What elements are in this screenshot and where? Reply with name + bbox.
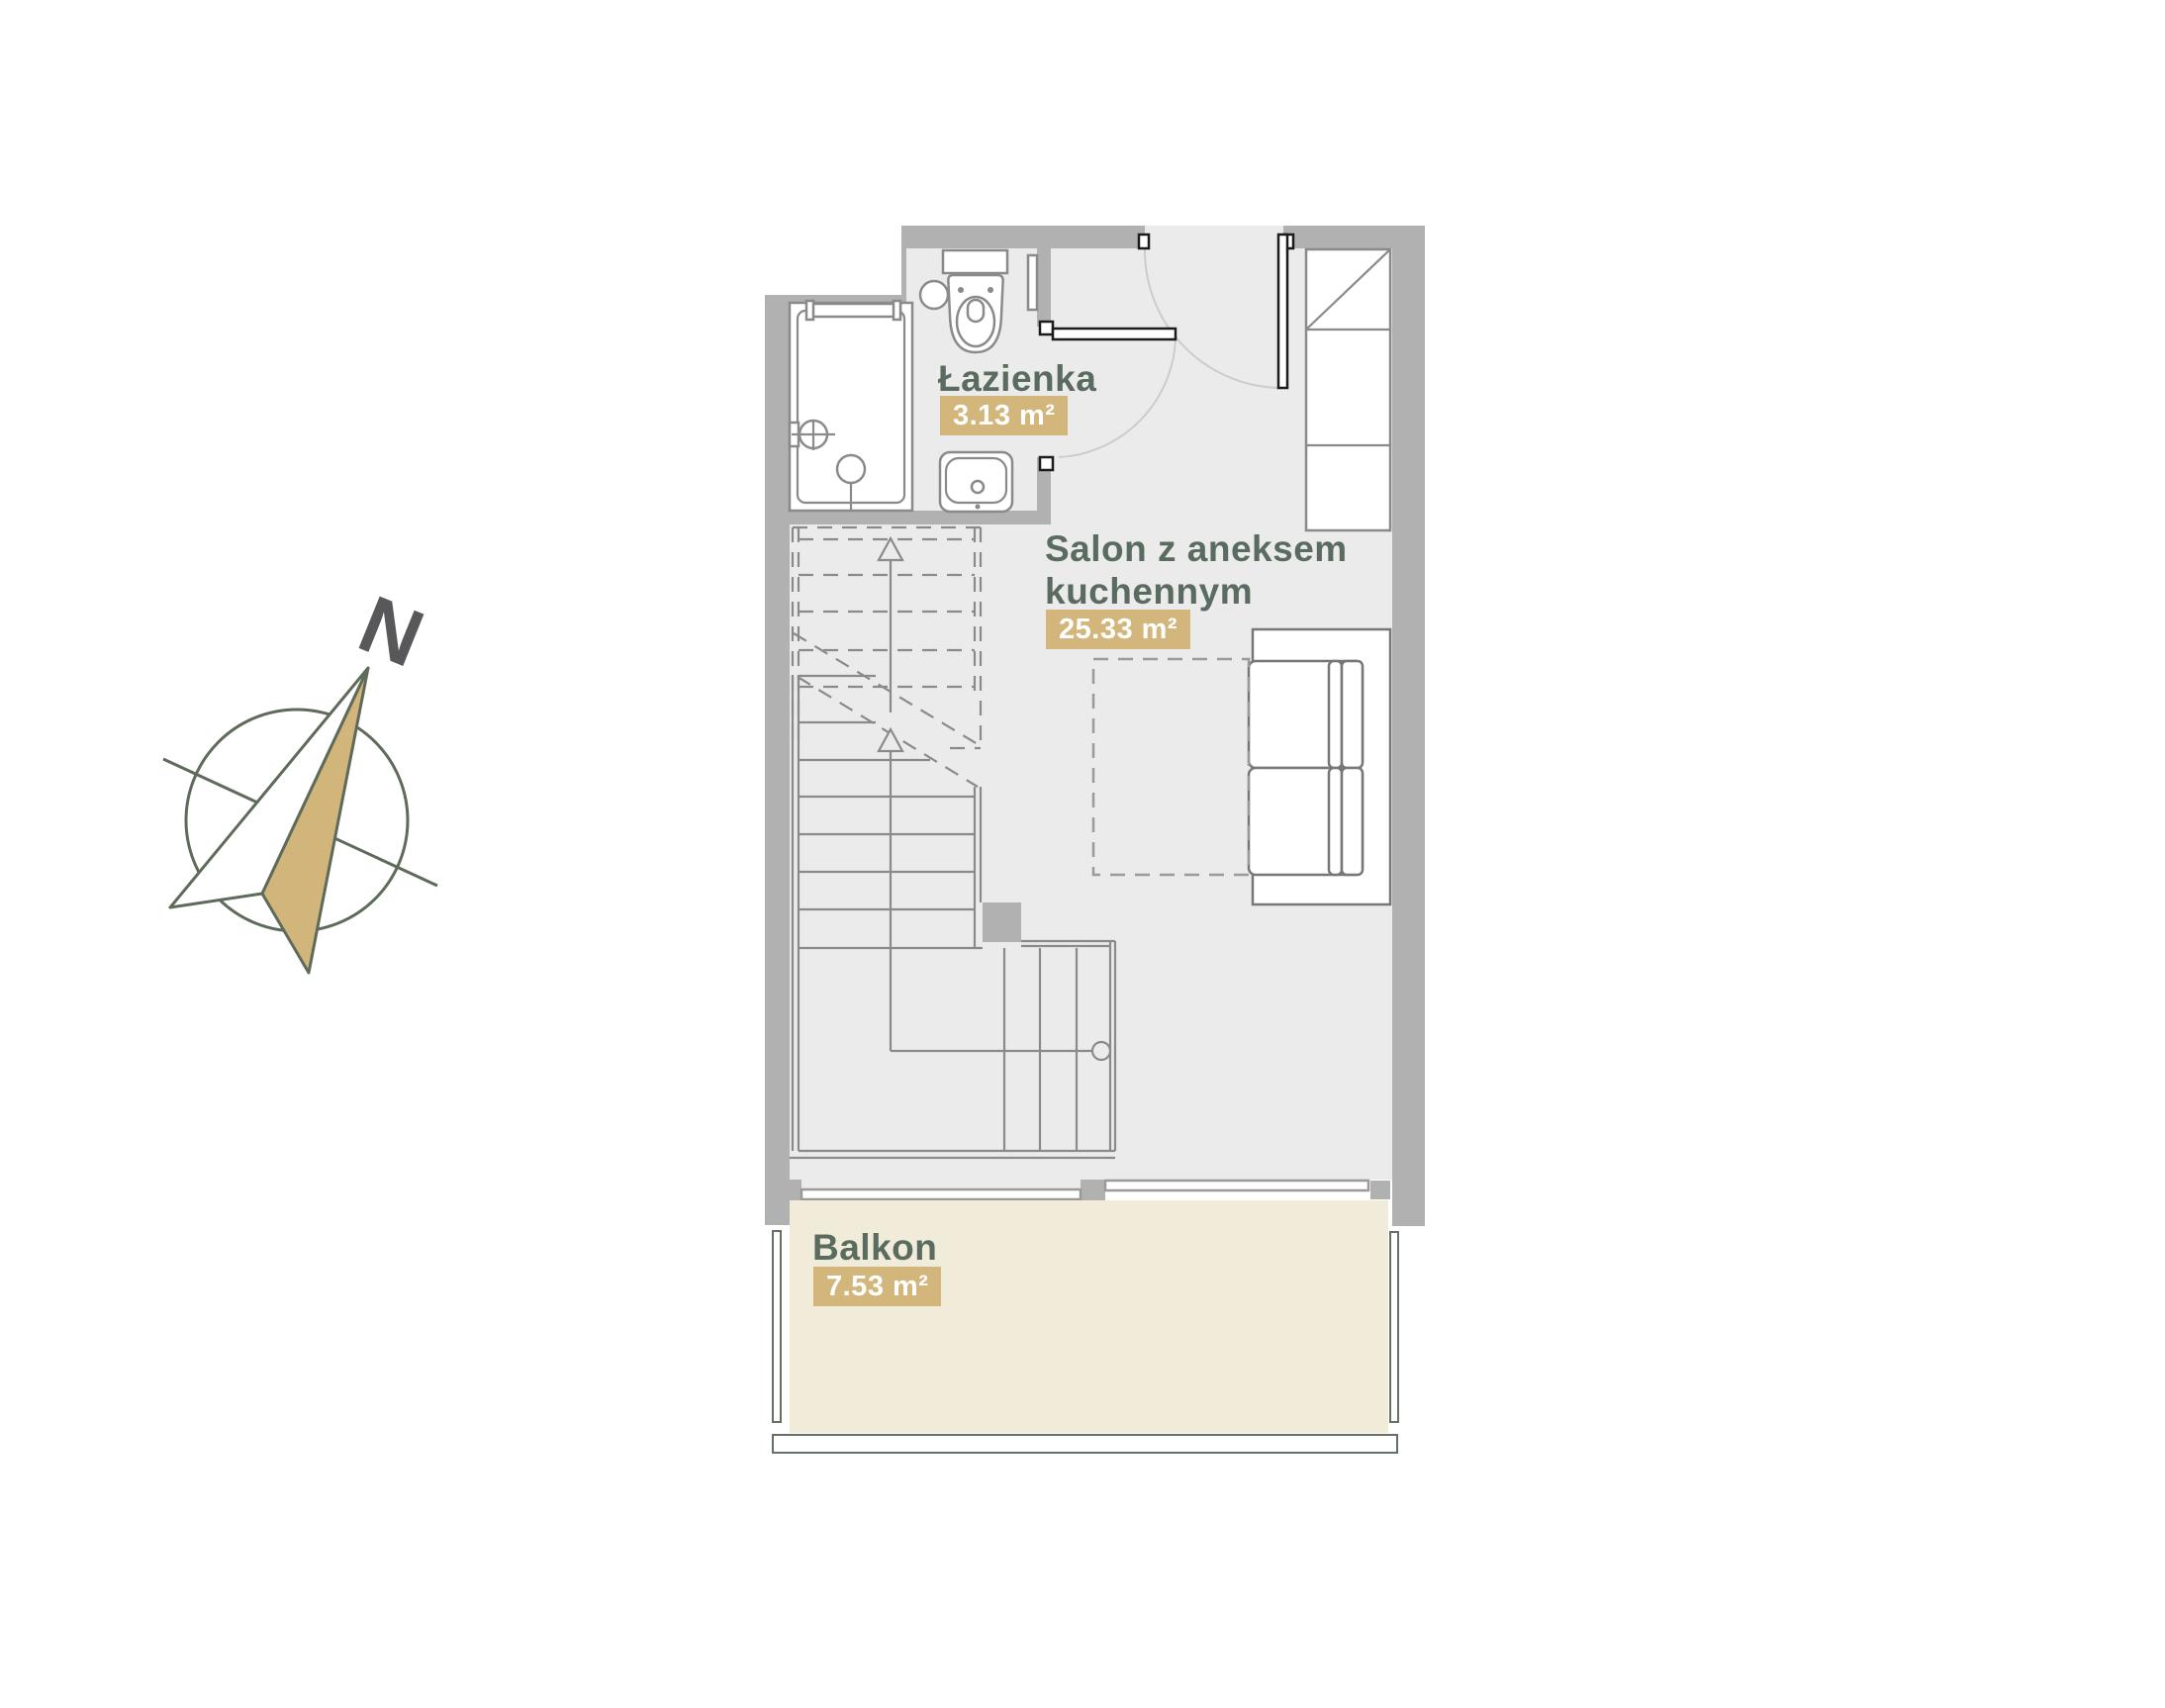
door-jamb-marker xyxy=(1040,457,1053,470)
window-left xyxy=(801,1189,1081,1199)
balcony-slab xyxy=(773,1435,1397,1453)
entry-door-leaf xyxy=(1278,235,1287,388)
bathroom-area-badge: 3.13 m² xyxy=(940,396,1068,435)
bathroom-door-leaf xyxy=(1053,329,1176,339)
toilet-floor-drain-icon xyxy=(920,281,948,309)
shower-glass-door xyxy=(809,304,900,317)
shower-head-icon xyxy=(837,455,865,483)
living-room-label-line1: Salon z aneksem xyxy=(1045,527,1348,570)
living-room-label-line2: kuchennym xyxy=(1045,570,1348,613)
bathroom-label: Łazienka xyxy=(938,357,1096,400)
door-jamb-marker xyxy=(1139,235,1149,248)
balcony-area-badge: 7.53 m² xyxy=(813,1267,941,1306)
window-right xyxy=(1105,1181,1368,1190)
toilet-cistern xyxy=(943,250,1007,273)
balcony-railing-right xyxy=(1390,1232,1398,1422)
balcony-label: Balkon xyxy=(812,1226,937,1269)
bathroom-radiator xyxy=(1028,255,1037,310)
balcony-railing-left xyxy=(773,1231,781,1422)
shower xyxy=(790,301,912,511)
door-jamb-marker xyxy=(1040,322,1053,334)
north-label: N xyxy=(347,579,435,685)
living-room-area-badge: 25.33 m² xyxy=(1046,610,1190,649)
sink xyxy=(940,452,1012,512)
sofa xyxy=(1249,629,1390,904)
living-room-label: Salon z aneksem kuchennym xyxy=(1045,527,1348,613)
wardrobe xyxy=(1306,249,1390,530)
floor-plan-canvas: N Łazienka 3.13 m² Salon z aneksem kuche… xyxy=(0,0,2165,1708)
window-mullion xyxy=(1081,1180,1105,1200)
stair-pier xyxy=(983,902,1021,942)
floor-plan-drawing: N xyxy=(0,0,2165,1708)
compass-rose: N xyxy=(163,579,437,973)
